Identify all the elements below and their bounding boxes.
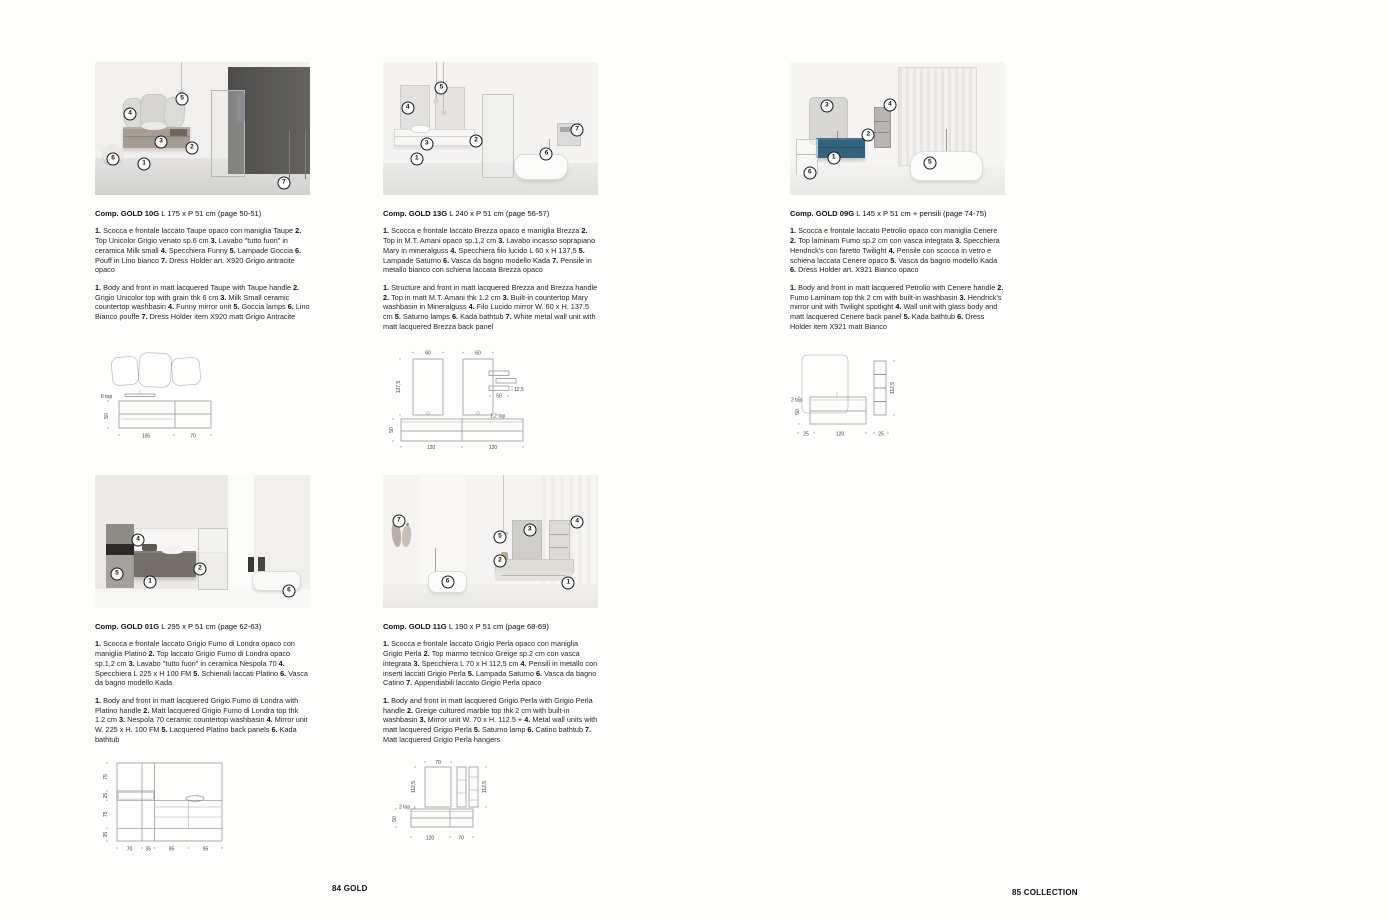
wall-unit-shelf-line	[549, 534, 568, 535]
callout-2: 2	[862, 129, 875, 142]
composition-gold-09g: 123456 Comp. GOLD 09G L 145 x P 51 cm + …	[790, 62, 1007, 332]
dim-label: 95	[169, 847, 175, 853]
composition-code: Comp. GOLD 11G	[383, 622, 447, 631]
composition-title: Comp. GOLD 11G L 190 x P 51 cm (page 68-…	[383, 622, 600, 631]
vanity-drawer-line	[816, 147, 865, 148]
stool	[258, 557, 264, 572]
callout-2: 2	[193, 563, 206, 576]
chair-seat	[796, 154, 815, 155]
dim-label: 120	[426, 836, 435, 842]
callout-5: 5	[493, 530, 506, 543]
product-photo-gold-01g: 12456	[95, 475, 310, 608]
composition-size: L 175 x P 51 cm (page 50-51)	[161, 209, 261, 218]
callout-3: 3	[420, 138, 433, 151]
composition-title: Comp. GOLD 13G L 240 x P 51 cm (page 56-…	[383, 209, 600, 218]
dim-label: 120	[489, 445, 498, 450]
dim-label: 12,5	[514, 387, 524, 393]
dim-label: 50	[795, 409, 801, 415]
dim-label: 70	[127, 847, 133, 853]
composition-gold-01g: 12456 Comp. GOLD 01G L 295 x P 51 cm (pa…	[95, 475, 312, 745]
dim-label: 112,5	[411, 781, 417, 793]
callout-6: 6	[540, 148, 553, 161]
callout-6: 6	[803, 167, 816, 180]
callout-1: 1	[827, 152, 840, 165]
composition-size: L 240 x P 51 cm (page 56-57)	[449, 209, 549, 218]
callout-1: 1	[410, 152, 423, 165]
callout-2: 2	[493, 555, 506, 568]
composition-size: L 295 x P 51 cm (page 62-63)	[161, 622, 261, 631]
callout-2: 2	[470, 135, 483, 148]
page-number-right: 85 COLLECTION	[1012, 888, 1078, 897]
metal-wall-unit	[549, 520, 570, 563]
dim-label: 2 top	[399, 805, 410, 811]
callout-4: 4	[401, 102, 414, 115]
dim-label: 1,2 top	[490, 414, 506, 420]
description-italian: 1. Scocca e frontale laccato Brezza opac…	[383, 226, 598, 275]
callout-1: 1	[138, 158, 151, 171]
dim-label: 60	[425, 351, 431, 357]
composition-gold-11g: 1234567 Comp. GOLD 11G L 190 x P 51 cm (…	[383, 475, 600, 745]
composition-code: Comp. GOLD 13G	[383, 209, 447, 218]
callout-7: 7	[392, 515, 405, 528]
dim-label: 120	[836, 432, 845, 438]
product-photo-gold-10g: 1234567	[95, 62, 310, 195]
faucet	[837, 131, 838, 138]
dim-label: 112,5	[482, 781, 488, 793]
dim-label: 50	[104, 413, 110, 419]
white-pillar	[228, 475, 254, 608]
countertop-accessories	[142, 544, 157, 551]
catalog-page: 1234567 Comp. GOLD 10G L 175 x P 51 cm (…	[0, 0, 1388, 920]
dim-label: 60	[475, 351, 481, 357]
callout-1: 1	[144, 576, 157, 589]
description-english: 1. Body and front in matt lacquered Grig…	[95, 696, 310, 745]
hanger-garment	[401, 525, 411, 547]
shower-enclosure	[198, 528, 228, 590]
dim-label: 75	[103, 774, 109, 780]
technical-drawing: 70 112,5 112,5 2 top 50 120	[387, 755, 507, 847]
glass-wall-unit	[874, 107, 891, 148]
description-english: 1. Body and front in matt lacquered Grig…	[383, 696, 598, 745]
description-italian: 1. Scocca e frontale laccato Taupe opaco…	[95, 226, 310, 275]
callout-4: 4	[132, 534, 145, 547]
callout-4: 4	[124, 108, 137, 121]
kada-bathtub	[910, 151, 983, 181]
callout-5: 5	[110, 567, 123, 580]
dim-label: 50	[392, 816, 398, 822]
product-photo-gold-09g: 123456	[790, 62, 1005, 195]
technical-drawing: 60 60 137,5 1,2 top 50 12,5 50	[383, 345, 528, 450]
composition-gold-13g: 1234567 Comp. GOLD 13G L 240 x P 51 cm (…	[383, 62, 600, 332]
dim-label: 95	[203, 847, 209, 853]
dim-label: 6 top	[101, 394, 112, 400]
dim-label: 50	[496, 394, 502, 400]
vanity-unit	[394, 129, 476, 147]
hanger-hook	[406, 523, 409, 526]
pendant-cord	[436, 62, 437, 101]
description-english: 1. Body and front in matt lacquered Taup…	[95, 283, 310, 322]
callout-6: 6	[441, 576, 454, 589]
dim-label: 25	[803, 432, 809, 438]
vanity-drawer	[495, 571, 572, 582]
dim-label: 25	[103, 793, 109, 799]
description-italian: 1. Scocca e frontale laccato Grigio Fumo…	[95, 639, 310, 688]
dress-holder	[289, 131, 306, 179]
callout-2: 2	[185, 142, 198, 155]
composition-code: Comp. GOLD 09G	[790, 209, 854, 218]
composition-title: Comp. GOLD 01G L 295 x P 51 cm (page 62-…	[95, 622, 312, 631]
dim-label: 50	[389, 427, 395, 433]
composition-title: Comp. GOLD 09G L 145 x P 51 cm + pensili…	[790, 209, 1007, 218]
shower-enclosure	[482, 94, 514, 178]
callout-5: 5	[176, 92, 189, 105]
composition-size: L 145 x P 51 cm + pensili (page 74-75)	[856, 209, 986, 218]
dim-label: 112,5	[890, 382, 896, 394]
callout-3: 3	[155, 136, 168, 149]
composition-size: L 190 x P 51 cm (page 68-69)	[449, 622, 549, 631]
callout-4: 4	[571, 515, 584, 528]
callout-3: 3	[820, 100, 833, 113]
callout-5: 5	[435, 81, 448, 94]
countertop-washbasin	[162, 546, 184, 554]
product-photo-gold-13g: 1234567	[383, 62, 598, 195]
goccia-lamp-cord	[181, 62, 182, 91]
tub-faucet	[946, 129, 947, 152]
callout-6: 6	[107, 152, 120, 165]
dim-label: 25	[878, 432, 884, 438]
open-shelf	[170, 129, 187, 136]
callout-4: 4	[883, 98, 896, 111]
technical-drawing: 6 top 50 105 70	[99, 345, 219, 440]
wall-unit-shelf-line	[874, 121, 889, 122]
dim-label: 70	[435, 760, 441, 766]
composition-title: Comp. GOLD 10G L 175 x P 51 cm (page 50-…	[95, 209, 312, 218]
callout-7: 7	[277, 177, 290, 190]
dim-label: 105	[142, 434, 151, 440]
tall-cabinet-black-band	[106, 544, 134, 555]
dim-label: 35	[145, 847, 151, 853]
description-italian: 1. Scocca e frontale laccato Petrolio op…	[790, 226, 1005, 275]
drawer-handle-line	[501, 575, 566, 576]
description-english: 1. Structure and front in matt lacquered…	[383, 283, 598, 332]
fumo-vanity	[134, 551, 196, 577]
product-photo-gold-11g: 1234567	[383, 475, 598, 608]
description-english: 1. Body and front in matt lacquered Petr…	[790, 283, 1005, 332]
dim-label: 70	[190, 434, 196, 440]
tub-faucet	[435, 548, 437, 571]
wall-unit-shelf-line	[549, 547, 568, 548]
washbasin	[411, 125, 430, 133]
vanity-drawer-line	[394, 136, 474, 137]
dim-label: 35	[103, 832, 109, 838]
callout-6: 6	[282, 584, 295, 597]
saturno-lamp	[441, 110, 447, 115]
countertop-washbasin	[142, 122, 166, 130]
technical-drawing: 2 top 50 112,5 25 120 25	[790, 345, 905, 440]
towel	[237, 93, 246, 122]
composition-code: Comp. GOLD 10G	[95, 209, 159, 218]
dim-label: 70	[458, 836, 464, 842]
callout-1: 1	[562, 576, 575, 589]
dim-label: 137,5	[396, 381, 402, 394]
composition-code: Comp. GOLD 01G	[95, 622, 159, 631]
callout-7: 7	[571, 123, 584, 136]
dim-label: 120	[427, 445, 436, 450]
floor	[95, 589, 310, 608]
technical-drawing: 75 25 75 35 70 35 95 95	[95, 755, 230, 852]
description-italian: 1. Scocca e frontale laccato Grigio Perl…	[383, 639, 598, 688]
callout-5: 5	[923, 156, 936, 169]
page-number-left: 84 GOLD	[332, 884, 368, 893]
saturno-lamp-cord	[503, 475, 504, 532]
stool	[248, 557, 254, 572]
dim-label: 2 top	[791, 398, 802, 404]
composition-gold-10g: 1234567 Comp. GOLD 10G L 175 x P 51 cm (…	[95, 62, 312, 322]
dim-label: 75	[103, 811, 109, 817]
callout-3: 3	[523, 524, 536, 537]
wall-unit-shelf-line	[874, 132, 889, 133]
